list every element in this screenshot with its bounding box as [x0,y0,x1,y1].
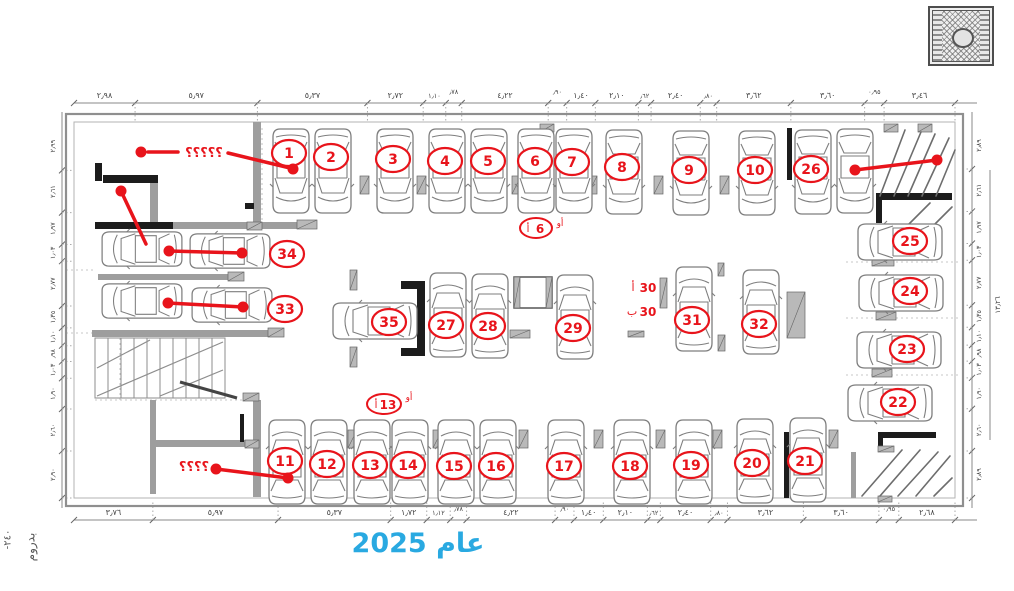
parking-spot-24: 24 [859,272,943,314]
annotation-dot [116,186,127,197]
dim-right-label: ١٫٣٥ [975,309,983,322]
dim-left-label: ١٫٠٣ [49,246,57,259]
spot-number-18: 18 [620,459,639,475]
spot-number-10: 10 [745,163,765,179]
parking-spot-31: 31 [673,267,715,351]
spot-6a-prefix: أ [527,222,530,235]
spot-number-16: 16 [486,459,505,475]
page: ٢٫٩٨٥٫٩٧٥٫٣٧٢٫٧٢١٫١٠٫٧٨٤٫٢٢٫٩٠١٫٤٠٢٫١٠٫٦… [0,0,1014,591]
dim-top-label: ٢٫١٠ [609,91,625,100]
dim-left-label: ١٫٠٣ [49,363,57,376]
spot-number-24: 24 [900,284,920,300]
parking-spot-12: 12 [308,420,350,504]
parking-spot-23: 23 [857,329,941,371]
dim-bottom-label: ٥٫٩٧ [208,508,224,517]
ramp-wall-diagonal [180,382,237,398]
spot-30a: أ30 [631,280,656,295]
stair-diagonal [97,340,150,368]
dim-right-label: ١٫٩٧ [975,221,983,234]
dim-top-label: ٢٫٤٠ [668,91,684,100]
spot-number-33: 33 [275,302,294,318]
wall-gray [98,274,228,280]
spot-number-26: 26 [801,162,820,178]
dim-top-label: ٣٫٦٠ [820,91,836,100]
dim-bottom-label: ١٫٧٢ [401,508,417,517]
dim-top-label: ٥٫٩٧ [188,91,204,100]
parking-spot-18: 18 [611,420,653,504]
dim-left-label: ١٫٣٥ [49,310,57,323]
spot-number-2: 2 [326,150,336,166]
dim-top-label: ٤٫٢٢ [497,91,513,100]
dim-right-label: ٢٫٧٧ [975,276,983,289]
parking-spot-19: 19 [673,420,715,504]
spot-number-22: 22 [888,395,907,411]
annotation-dot [237,248,248,259]
spot-number-21: 21 [795,454,814,470]
parking-spot-2: 2 [312,129,354,213]
annotation-text-unknown-room-top: ؟؟؟؟؟ [185,146,223,161]
ramp-hatch-line [922,138,949,196]
parking-spot-21: 21 [787,418,829,502]
dim-right-label: ١٫١٠ [975,330,983,343]
spot-number-31: 31 [682,313,701,329]
wall-gray [155,440,245,447]
spot-number-32: 32 [749,317,768,333]
parking-spot-5: 5 [468,129,510,213]
spot-number-4: 4 [440,154,450,170]
parking-spot-7: 7 [553,129,595,213]
wall-gray [851,452,856,498]
dim-left-label: ٢٫٦٠ [49,424,57,437]
wall-gray [92,330,269,337]
dim-top-label: ١٫١٠ [428,92,441,100]
dim-bottom-label: ٤٫٢٢ [503,508,519,517]
annotation-dot [163,298,174,309]
dim-bottom-label: ٥٫٣٧ [327,508,343,517]
spot-6a-suffix: أو [556,217,564,229]
spot-number-15: 15 [444,459,463,475]
dim-top-label: ٠٫٩٥ [868,88,881,96]
wall-black [401,348,425,356]
parking-spot-14: 14 [389,420,431,504]
spot-number-28: 28 [478,319,497,335]
wall-black [95,222,173,229]
dim-left-label: ١٫١٠ [49,330,57,343]
parking-spot-13: 13 [351,420,393,504]
ramp-hatch-line [862,450,902,496]
wall-black [787,128,792,180]
parking-spot-29: 29 [554,275,596,359]
annotation-dot [283,473,294,484]
ramp-hatch-line [934,478,952,496]
parking-spot-25: 25 [858,221,942,263]
spot-30a-number: 30 [640,281,657,295]
spot-number-7: 7 [567,155,577,171]
parking-spot-3: 3 [374,129,416,213]
spot-number-8: 8 [617,160,627,176]
parking-spot-6: 6 [515,129,557,213]
parking-spot-4: 4 [426,129,468,213]
parking-spot-10: 10 [736,131,778,215]
annotation-text-unknown-room-bottom: ؟؟؟؟ [179,460,209,475]
spot-number-5: 5 [483,154,493,170]
annotation-dot [164,246,175,257]
dim-left-label: ١٫٩٠ [49,387,57,400]
parking-spot-11: 11 [266,420,308,504]
dim-right-label: ٢٫٦٠ [975,424,983,437]
dim-bottom-label: ٢٫٦٨ [919,508,935,517]
spot-number-12: 12 [317,457,336,473]
dim-top-label: ٣٫٦٢ [746,91,762,100]
spot-13a-number: 13 [380,398,397,412]
dim-bottom-label: ١٫١٢ [432,509,445,517]
spot-30b-prefix: ب [627,305,637,318]
wall-black [417,281,425,356]
annotation-dot [238,302,249,313]
dim-left-label: ٢٫٦١ [49,185,57,198]
dim-bottom-label: ٣٫٧٦ [106,508,122,517]
parking-spot-16: 16 [477,420,519,504]
dim-top-label: ٢٫٩٨ [97,91,113,100]
dim-bottom-label: ٣٫٦٠ [833,508,849,517]
parking-spot-33: 33 [102,281,302,325]
spot-number-29: 29 [563,321,582,337]
floor-plan: ٢٫٩٨٥٫٩٧٥٫٣٧٢٫٧٢١٫١٠٫٧٨٤٫٢٢٫٩٠١٫٤٠٢٫١٠٫٦… [0,0,1014,591]
parking-spot-15: 15 [435,420,477,504]
dim-bottom-label: ٢٫٤٠ [678,508,694,517]
parking-spot-28: 28 [469,274,511,358]
wall-black [103,175,158,183]
dim-bottom-label: ١٫٤٠ [581,508,597,517]
spot-number-17: 17 [554,459,573,475]
spot-number-13: 13 [360,458,379,474]
parking-spot-34: 34 [102,229,304,271]
spot-13a-suffix: أو [405,391,413,403]
parking-spot-17: 17 [545,420,587,504]
wall-black [878,432,936,438]
dim-right-label: ٫٩٨ [975,348,983,358]
spot-number-9: 9 [684,163,694,179]
spot-13a-prefix: أ [375,398,378,411]
wall-gray [253,400,261,497]
wall-black [95,163,102,181]
spot-number-25: 25 [900,234,919,250]
annotation-dot [136,147,147,158]
dim-left-label: ١٫٩٧ [49,222,57,235]
spot-30a-prefix: أ [631,280,634,294]
dim-top-label: ٫٩٠ [553,88,562,96]
spot-number-14: 14 [398,458,418,474]
dim-top-label: ١٫٤٠ [573,91,589,100]
dim-top-label: ٣٫٤٦ [912,91,928,100]
parking-spot-22: 22 [848,382,932,424]
parking-spot-35: 35 [333,300,417,342]
dim-right-label: ٢٫٨٩ [975,468,983,481]
dim-left-label: ٢٫٩٠ [49,468,57,481]
spot-30b: ب30 [627,305,657,319]
annotation-dot [850,165,861,176]
spot-number-35: 35 [379,315,398,331]
dim-top-label: ٫٨٠ [704,92,713,100]
parking-spot-9: 9 [670,131,712,215]
spot-6a-number: 6 [536,222,544,236]
parking-spot-20: 20 [734,419,776,503]
spot-number-6: 6 [530,154,540,170]
dim-top-label: ٫٦٢ [640,92,650,100]
spot-number-3: 3 [388,152,398,168]
dim-top-label: ٢٫٧٢ [388,91,404,100]
annotation-dot [288,164,299,175]
dim-bottom-label: ٣٫٦٢ [758,508,774,517]
parking-spot-32: 32 [740,270,782,354]
dim-right-outer-label: ١٣٫٢٦ [994,296,1002,314]
annotation-dot [932,155,943,166]
ramp-hatch-line [880,450,920,496]
staircase [95,338,237,398]
dim-bottom-label: ٢٫١٠ [618,508,634,517]
spot-number-11: 11 [275,454,294,470]
dim-top-label: ٫٧٨ [449,88,459,96]
spot-number-20: 20 [742,456,762,472]
side-note-elevation: -٢٤٠ [2,530,13,550]
dim-bottom-label: ٫٦٢ [649,509,659,517]
dim-right-label: ١٫٩٠ [975,387,983,400]
dim-left-label: ٢٫٩٩ [49,139,57,152]
dim-left-label: ٫٩٨ [49,349,57,359]
spot-number-1: 1 [284,146,294,162]
wall-black [401,281,425,289]
ramp-hatch-line [916,456,950,496]
spot-6a: أ6أو [520,217,563,238]
annotation-line [169,251,242,253]
dim-right-label: ٢٫٦١ [975,184,983,197]
dim-bottom-label: ٫٨٠ [715,509,724,517]
dim-top-label: ٥٫٣٧ [305,91,321,100]
dim-right-label: ١٫٠٣ [975,363,983,376]
parking-spot-8: 8 [603,130,645,214]
wall-black [245,203,254,209]
spot-number-27: 27 [436,318,455,334]
ramp-hatch-line [898,452,938,496]
annotation-dot [211,464,222,475]
dim-left-label: ٢٫٧٧ [49,277,57,290]
wall-gray [253,122,261,228]
wall-black [876,193,952,200]
dim-right-label: ١٫٠٣ [975,245,983,258]
wall-black [240,414,244,442]
parking-spot-27: 27 [427,273,469,357]
spot-number-23: 23 [897,342,916,358]
ramp-hatch-line [908,134,935,196]
parking-spot-26: 26 [792,130,834,214]
spot-13a: أ13أو [367,391,412,414]
side-note-basement: بدروم [23,533,37,562]
spot-number-34: 34 [277,247,297,263]
dim-right-label: ٢٫٨٩ [975,139,983,152]
wall-black [876,193,882,223]
spot-30b-number: 30 [640,305,657,319]
year-title: عام 2025 [318,528,518,559]
spot-number-19: 19 [681,458,700,474]
